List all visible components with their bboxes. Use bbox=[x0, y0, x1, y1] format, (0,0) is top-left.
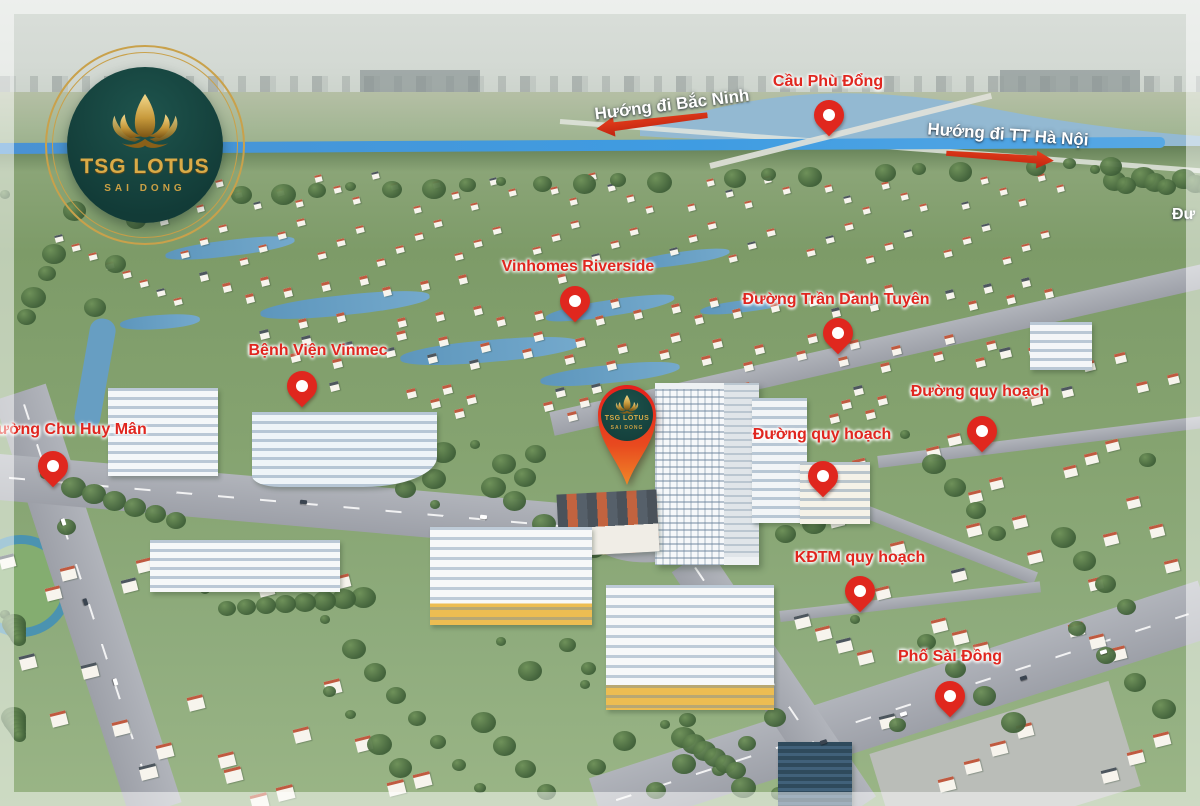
tree bbox=[57, 519, 76, 535]
pin-dot bbox=[47, 460, 59, 472]
logo-title: TSG LOTUS bbox=[67, 155, 223, 179]
label-duong-quy-hoach-center: Đường quy hoạch bbox=[753, 426, 892, 444]
tree bbox=[944, 478, 966, 497]
tree bbox=[166, 512, 186, 529]
tree bbox=[724, 169, 746, 188]
apartment-block-a bbox=[430, 527, 592, 625]
lotus-icon bbox=[108, 91, 182, 149]
tsg-lotus-tower bbox=[655, 383, 759, 565]
tree bbox=[726, 762, 746, 779]
tree bbox=[537, 784, 556, 800]
tree bbox=[496, 177, 506, 186]
tree bbox=[1073, 551, 1096, 571]
tree bbox=[966, 502, 986, 519]
map-pin-duong-quy-hoach-center bbox=[802, 457, 844, 499]
tree bbox=[364, 663, 386, 682]
tree bbox=[900, 430, 910, 439]
tree bbox=[386, 687, 406, 704]
label-kdtm-quy-hoach: KĐTM quy hoạch bbox=[795, 549, 926, 567]
school-building bbox=[150, 540, 340, 592]
tree bbox=[430, 500, 440, 509]
tree bbox=[573, 174, 596, 194]
tree bbox=[1063, 158, 1076, 169]
tree bbox=[1116, 177, 1136, 194]
pin-dot bbox=[832, 327, 844, 339]
tree bbox=[525, 445, 546, 463]
logo-subtitle: SAI DONG bbox=[67, 183, 223, 194]
tree bbox=[275, 595, 296, 613]
tree bbox=[496, 637, 506, 646]
label-vinhomes-riverside: Vinhomes Riverside bbox=[502, 258, 655, 276]
lotus-icon bbox=[614, 394, 640, 414]
tree bbox=[1090, 165, 1100, 174]
tree bbox=[13, 731, 26, 742]
tree bbox=[323, 686, 336, 697]
map-pin-tran-danh-tuyen bbox=[817, 314, 859, 356]
pin-dot bbox=[823, 109, 835, 121]
car bbox=[480, 515, 487, 520]
tree bbox=[103, 491, 126, 511]
tree bbox=[764, 708, 786, 727]
tree bbox=[587, 759, 606, 775]
tree bbox=[646, 782, 666, 799]
pin-dot bbox=[569, 295, 581, 307]
tsg-lotus-logo: TSG LOTUS SAI DONG bbox=[45, 45, 245, 245]
tree bbox=[761, 168, 776, 181]
tree bbox=[430, 735, 446, 749]
tree bbox=[84, 298, 106, 317]
tree bbox=[320, 615, 330, 624]
tree bbox=[12, 634, 26, 646]
tree bbox=[613, 731, 636, 751]
location-map: Hướng đi Bắc Ninh Hướng đi TT Hà Nội Cầu… bbox=[0, 0, 1200, 806]
tree bbox=[452, 759, 466, 771]
map-pin-vinhomes-riverside bbox=[554, 282, 596, 324]
car bbox=[300, 500, 307, 505]
project-pin-title: TSG LOTUS bbox=[601, 415, 653, 422]
tree bbox=[256, 597, 276, 614]
tree bbox=[1124, 673, 1146, 692]
pin-dot bbox=[976, 425, 988, 437]
tree bbox=[237, 599, 256, 615]
tree bbox=[875, 164, 896, 182]
tree bbox=[912, 163, 926, 175]
tree bbox=[610, 173, 626, 187]
tree bbox=[514, 468, 536, 487]
project-pin-subtitle: SAI DONG bbox=[601, 425, 653, 431]
tree bbox=[470, 440, 480, 449]
tree bbox=[949, 162, 972, 182]
tree bbox=[294, 593, 316, 612]
tree bbox=[1095, 575, 1116, 593]
tree bbox=[1100, 157, 1122, 176]
label-pho-sai-dong: Phố Sài Đồng bbox=[898, 648, 1002, 666]
tower-front-face bbox=[655, 389, 724, 565]
map-pin-duong-quy-hoach-east bbox=[961, 412, 1003, 454]
label-edge-partial: Đư bbox=[1172, 206, 1195, 224]
tree bbox=[493, 736, 516, 756]
tree bbox=[17, 309, 36, 325]
map-pin-pho-sai-dong bbox=[929, 677, 971, 719]
tree bbox=[515, 760, 536, 778]
glass-tower bbox=[778, 742, 852, 806]
logo-disc: TSG LOTUS SAI DONG bbox=[67, 67, 223, 223]
label-tran-danh-tuyen: Đường Trần Danh Tuyên bbox=[742, 291, 929, 309]
white-midrise bbox=[1030, 322, 1092, 370]
map-pin-duong-chu-huy-man bbox=[32, 447, 74, 489]
label-duong-quy-hoach-east: Đường quy hoạch bbox=[911, 383, 1050, 401]
pin-dot bbox=[817, 470, 829, 482]
tree bbox=[124, 498, 146, 517]
secondary-tower bbox=[752, 398, 807, 523]
tree bbox=[105, 255, 126, 273]
tree bbox=[313, 591, 336, 611]
tree bbox=[382, 181, 402, 198]
map-pin-kdtm-quy-hoach bbox=[839, 572, 881, 614]
map-pin-benh-vien-vinmec bbox=[281, 367, 323, 409]
tree bbox=[973, 686, 996, 706]
tree bbox=[503, 491, 526, 511]
tree bbox=[580, 680, 590, 689]
tree bbox=[0, 190, 10, 199]
label-benh-vien-vinmec: Bệnh Viện Vinmec bbox=[248, 342, 387, 360]
apartment-block-b bbox=[606, 585, 774, 710]
tree bbox=[389, 758, 412, 778]
project-pin-badge: TSG LOTUS SAI DONG bbox=[601, 389, 653, 441]
vinmec-wave-building bbox=[252, 412, 437, 487]
tree bbox=[145, 505, 166, 523]
pin-dot bbox=[944, 690, 956, 702]
tree bbox=[581, 662, 596, 675]
pin-dot bbox=[854, 585, 866, 597]
tree bbox=[850, 615, 860, 624]
tree bbox=[775, 525, 796, 543]
tree bbox=[1157, 179, 1176, 195]
label-cau-phu-dong: Cầu Phù Đổng bbox=[773, 73, 883, 91]
label-duong-chu-huy-man: Đường Chu Huy Mân bbox=[0, 421, 147, 439]
project-pin-tsg-lotus: TSG LOTUS SAI DONG bbox=[595, 382, 659, 487]
tree bbox=[660, 720, 670, 729]
pin-dot bbox=[296, 380, 308, 392]
map-pin-cau-phu-dong bbox=[808, 96, 850, 138]
tree bbox=[1117, 599, 1136, 615]
tree bbox=[533, 176, 552, 192]
